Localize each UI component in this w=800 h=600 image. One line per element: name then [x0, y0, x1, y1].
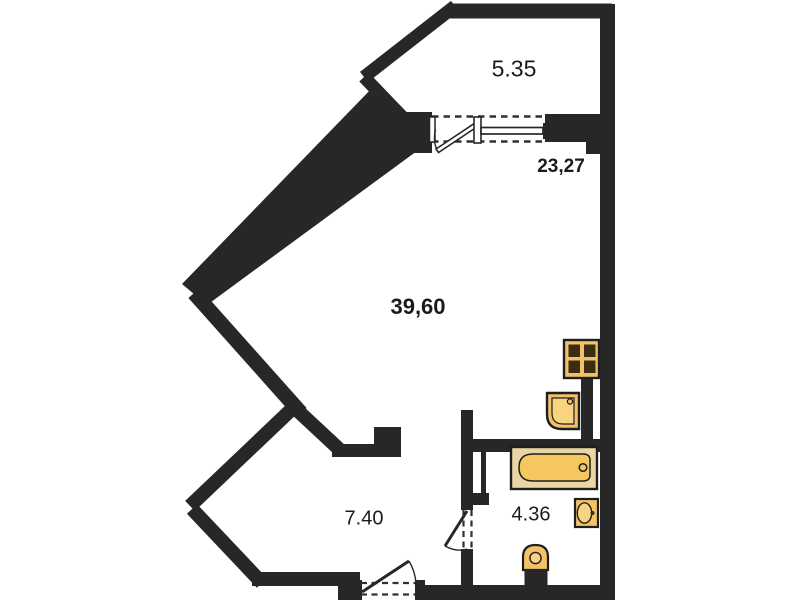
balcony-door-leaf: [436, 122, 479, 153]
balcony-door-window: [430, 117, 553, 153]
bathroom-door-hinge: [461, 549, 473, 559]
washbasin-icon: [575, 499, 598, 527]
wall-pillar: [374, 427, 401, 457]
entrance-door: [361, 561, 416, 595]
wall-kitchen-stub: [581, 379, 593, 443]
floor-plan: 5.35 23,27 39,60 7.40 4.36: [0, 0, 800, 600]
wall-hall-bottom-step: [338, 580, 362, 600]
wall-balcony-diagonal: [364, 6, 455, 77]
wall-zigzag-c: [190, 407, 294, 506]
wall-living-diagonal-thick: [182, 85, 432, 305]
kitchen-sink-icon: [547, 393, 579, 429]
wall-window-right: [545, 114, 615, 142]
room-label-living-room: 39,60: [390, 294, 445, 320]
toilet-icon: [523, 545, 548, 585]
room-label-living-window-zone: 23,27: [537, 156, 585, 178]
balcony-window: [481, 128, 543, 135]
balcony-window-endcap: [543, 123, 553, 139]
wall-bathroom-left-upper: [461, 410, 473, 510]
bathtub-icon: [511, 447, 597, 489]
wall-zigzag-b2: [296, 409, 340, 450]
stove-icon: [564, 340, 599, 378]
wall-shaft-stub: [472, 493, 489, 505]
bathroom-door: [445, 510, 473, 559]
entrance-door-leaf: [362, 561, 409, 592]
room-label-bathroom: 4.36: [512, 504, 551, 527]
entrance-door-arc: [409, 561, 416, 584]
room-label-hallway: 7.40: [345, 508, 384, 531]
bathroom-door-leaf: [445, 511, 467, 546]
wall-bottom: [424, 585, 615, 600]
wall-window-right-step: [586, 140, 615, 154]
wall-zigzag-d: [192, 509, 262, 583]
room-label-balcony: 5.35: [492, 56, 537, 83]
balcony-door-post: [474, 117, 481, 143]
wall-zigzag-b: [194, 293, 301, 413]
